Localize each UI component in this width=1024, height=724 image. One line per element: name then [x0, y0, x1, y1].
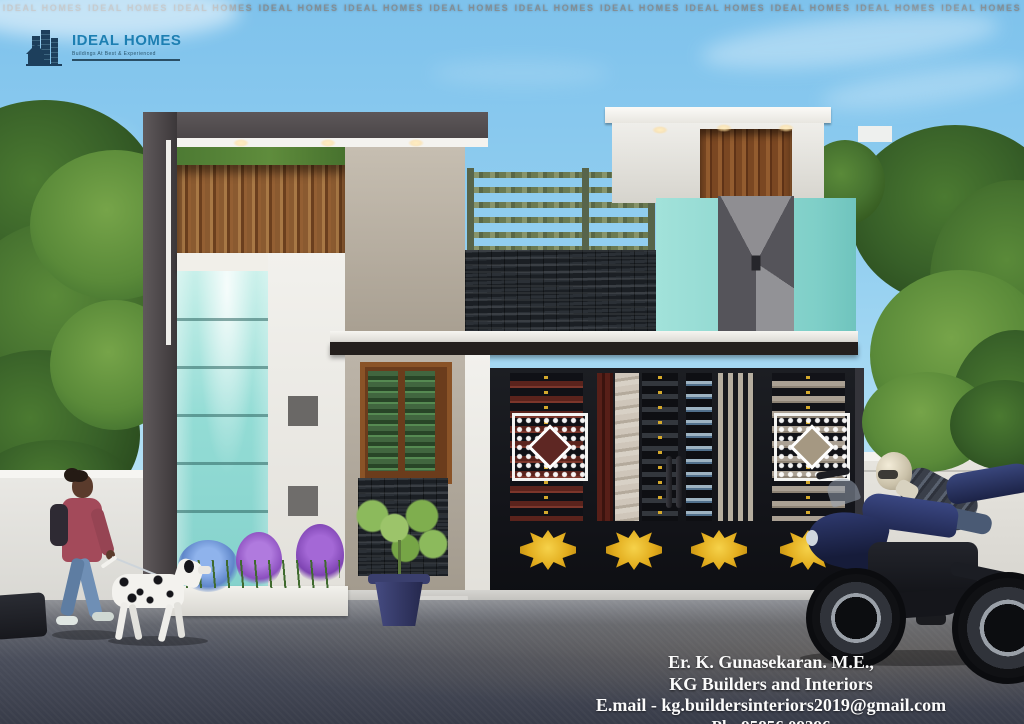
buildings-house-icon — [26, 28, 66, 68]
watermark-text: IDEAL HOMES — [515, 3, 595, 13]
upper-terrace-door — [718, 196, 794, 338]
house-roof-icon — [26, 44, 46, 54]
downlight — [652, 126, 668, 134]
window-louver-right — [405, 371, 435, 471]
wall-accent-square — [288, 396, 318, 426]
watermark-text: IDEAL HOMES — [771, 3, 851, 13]
watermark-text: IDEAL HOMES — [685, 3, 765, 13]
left-frame-white-inlay — [166, 140, 171, 345]
gate-slats-reflective — [686, 373, 712, 521]
downlight — [778, 124, 794, 132]
gate-slats-vertical-maroon — [597, 373, 613, 521]
cloud — [819, 56, 1024, 119]
downlight — [320, 139, 336, 147]
gate-marble-strip — [615, 373, 639, 521]
dog-ear — [184, 560, 194, 573]
compound-gate — [490, 368, 855, 594]
woman-shoe — [56, 616, 78, 625]
logo-text: IDEAL HOMES — [72, 32, 181, 49]
contact-phone: Ph: 95856 09396 — [536, 717, 1006, 724]
downlight — [408, 139, 424, 147]
left-frame-column — [143, 112, 177, 600]
gate-side-pillar — [465, 355, 490, 600]
contact-company: KG Builders and Interiors — [536, 674, 1006, 696]
gate-slats-vertical-light — [718, 373, 754, 521]
contact-email: E.mail - kg.buildersinteriors2019@gmail.… — [536, 695, 1006, 717]
woman-shoe — [92, 612, 114, 621]
distant-parapet — [858, 126, 892, 142]
terrace-stone-wall — [465, 250, 657, 340]
gate-handle — [676, 456, 682, 508]
bike-headlight — [806, 530, 818, 546]
downlight — [233, 139, 249, 147]
contact-name: Er. K. Gunasekaran. M.E., — [536, 652, 1006, 674]
watermark-text: IDEAL HOMES — [429, 3, 509, 13]
headroom-roof-slab — [605, 107, 831, 123]
canopy-fascia — [330, 331, 858, 342]
woman-backpack — [50, 504, 68, 546]
cloud — [430, 60, 610, 86]
louver-window — [360, 362, 452, 484]
glass-mullion — [177, 366, 268, 369]
gold-gate-ornament — [691, 530, 747, 570]
logo-tagline: Buildings At Best & Experienced — [72, 51, 156, 57]
window-louver-left — [368, 371, 398, 471]
wall-accent-square — [288, 486, 318, 516]
woman-hair — [70, 470, 88, 482]
left-frame-beam — [143, 112, 488, 140]
watermark-text: IDEAL HOMES — [259, 3, 339, 13]
watermark-text: IDEAL HOMES — [856, 3, 936, 13]
watermark-text: IDEAL HOMES — [344, 3, 424, 13]
glass-mullion — [177, 510, 268, 513]
contact-block: Er. K. Gunasekaran. M.E., KG Builders an… — [536, 652, 1006, 724]
watermark-text: IDEAL HOMES — [941, 3, 1021, 13]
glass-mullion — [177, 462, 268, 465]
downlight — [716, 124, 732, 132]
canopy-underside — [330, 342, 858, 355]
logo-rule — [72, 59, 180, 61]
gate-gold-rivets — [658, 376, 662, 518]
gold-gate-ornament — [520, 530, 576, 570]
logo: IDEAL HOMES Buildings At Best & Experien… — [26, 26, 196, 74]
gold-gate-ornament — [606, 530, 662, 570]
lattice-ornament-left — [512, 413, 588, 481]
glass-mullion — [177, 318, 268, 321]
render-canvas: .lattice::before{background:#5e2723;} #g… — [0, 0, 1024, 724]
headroom-wood-panel — [700, 129, 792, 201]
rider-visor — [878, 470, 898, 479]
dog-muzzle — [198, 566, 211, 574]
watermark-text: IDEAL HOMES — [600, 3, 680, 13]
glass-mullion — [177, 414, 268, 417]
gate-handle — [666, 456, 672, 508]
wood-slat-band — [177, 165, 345, 253]
stone-block — [0, 592, 47, 640]
center-column-upper — [345, 147, 465, 342]
